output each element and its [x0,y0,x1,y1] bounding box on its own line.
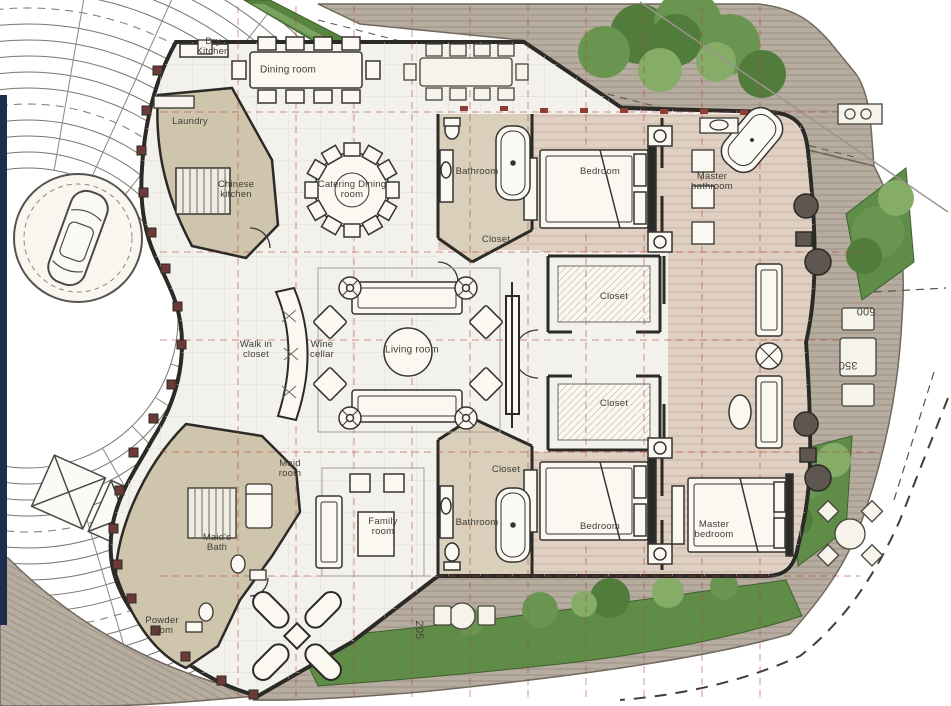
room-label-closet-mid-lower: Closet [600,399,628,409]
room-label-living-room: Living room [385,346,439,357]
room-label-closet-mid-upper: Closet [600,292,628,302]
dimension-205: 205 [412,621,424,640]
room-label-chinese-kitchen: Chinese kitchen [218,180,254,201]
side-table-icon [339,407,361,429]
room-label-dining-room: Dining room [260,66,316,77]
car-turntable [14,174,142,302]
outdoor-bistro-bottom [434,603,495,629]
room-label-powder-room: Powder room [145,616,178,637]
floor-plan-canvas [0,0,951,706]
room-label-bedroom-bottom: Bedroom [580,522,620,532]
room-label-closet-top: Closet [482,235,510,245]
side-table-icon [455,277,477,299]
room-label-master-bedroom: Master bedroom [695,520,734,541]
tv-console [506,282,519,428]
room-label-maid-room: Maid room [279,459,301,480]
room-label-walk-in-closet: Walk in closet [240,340,272,361]
side-table-icon [455,407,477,429]
room-label-family-room: Family room [368,517,397,538]
room-label-wine-cellar: Wine cellar [310,340,334,361]
dimension-350: 350 [839,358,858,370]
room-label-closet-bottom: Closet [492,465,520,475]
room-label-master-bathroom: Master bathroom [691,172,733,193]
side-table-icon [339,277,361,299]
room-label-bathroom-top: Bathroom [456,167,499,177]
room-label-catering-dining: Catering Dining room [318,180,386,201]
outdoor-kitchen-counter [838,104,882,124]
room-label-bedroom-top: Bedroom [580,167,620,177]
room-label-bathroom-bottom: Bathroom [456,518,499,528]
dimension-500: 500 [857,304,876,316]
outdoor-lounge-right [840,308,876,406]
edge-strip [0,95,7,625]
room-label-laundry: Laundry [172,117,208,127]
floor-plan: Dry Kitchen Dining room Laundry Chinese … [0,0,951,706]
room-label-maids-bath: Maid's Bath [203,533,231,554]
bed-master [672,474,793,556]
room-label-dry-kitchen: Dry Kitchen [196,37,229,58]
